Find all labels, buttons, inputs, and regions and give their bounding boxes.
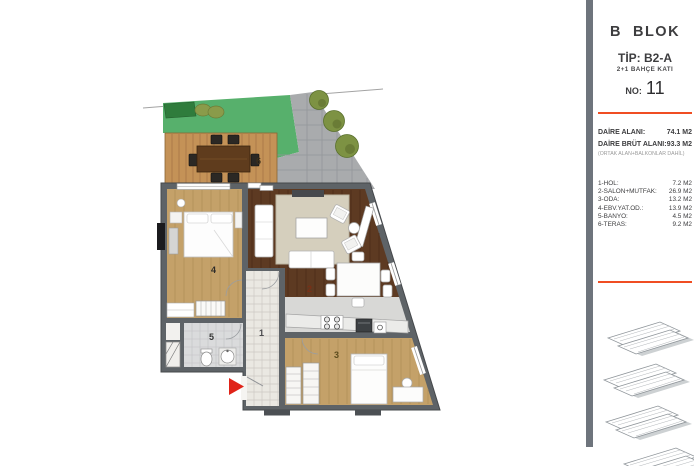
floor-type: 2+1 BAHÇE KATI (598, 66, 692, 73)
hall-closet (286, 367, 301, 404)
label-banyo: 5 (209, 332, 214, 342)
floor-plate-pair (604, 364, 690, 398)
desk-chair (402, 378, 412, 388)
room-label: 6-TERAS: (598, 221, 627, 229)
vestibule (166, 323, 180, 340)
room-value: 13.2 M2 (669, 196, 692, 204)
area-value: 93.3 M2 (667, 141, 692, 148)
room-row: 4-EBV.YAT.OD.: 13.9 M2 (598, 205, 692, 213)
label-hall: 1 (259, 328, 264, 338)
unit-number: NO: 11 (598, 78, 692, 99)
oda-wardrobe (303, 363, 319, 404)
room-list: 1-HOL: 7.2 M2 2-SALON+MUTFAK: 26.9 M2 3-… (598, 180, 692, 229)
dining-chair (352, 252, 364, 261)
toilet (201, 352, 212, 366)
unit-number-label: NO: (625, 86, 642, 96)
room-row: 5-BANYO: 4.5 M2 (598, 213, 692, 221)
dining-chair (381, 270, 390, 282)
dining-chair (326, 284, 335, 296)
area-row: DAİRE ALANI: 74.1 M2 (598, 129, 692, 136)
unit-type: TİP: B2-A (598, 51, 692, 65)
block-title: B BLOK (598, 24, 692, 40)
desk (393, 387, 423, 402)
nightstand (235, 212, 242, 228)
room-label: 5-BANYO: (598, 213, 628, 221)
info-panel: B BLOK TİP: B2-A 2+1 BAHÇE KATI NO: 11 D… (598, 0, 692, 466)
dining-table (337, 263, 380, 296)
sofa (255, 205, 273, 257)
hedge (164, 102, 196, 118)
area-note: (ORTAK ALAN+BALKONLAR DAHİL) (598, 151, 692, 157)
room-value: 26.9 M2 (669, 188, 692, 196)
area-label: DAİRE BRÜT ALANI: (598, 141, 667, 148)
room-row: 6-TERAS: 9.2 M2 (598, 221, 692, 229)
sill (355, 410, 381, 416)
floor-stack-icon (600, 318, 694, 466)
label-salon: 2 (307, 284, 312, 294)
sill (264, 410, 290, 416)
label-teras: 6 (256, 156, 261, 166)
lamp (177, 199, 185, 207)
room-value: 4.5 M2 (672, 213, 692, 221)
dresser (169, 228, 178, 254)
area-value: 74.1 M2 (667, 129, 692, 136)
panel-divider-bar (586, 0, 593, 447)
side-window (157, 223, 165, 250)
unit-number-value: 11 (646, 78, 665, 99)
floor-plate-pair (624, 448, 694, 466)
accent-rule-top (598, 112, 692, 114)
dining-chair (326, 268, 335, 280)
tv-unit (292, 190, 324, 197)
room-value: 9.2 M2 (672, 221, 692, 229)
loveseat (289, 251, 334, 268)
label-ebeveyn: 4 (211, 265, 216, 275)
oven (356, 319, 372, 332)
accent-rule-bottom (598, 281, 692, 283)
floor-plate-pair (606, 406, 692, 440)
area-row: DAİRE BRÜT ALANI: 93.3 M2 (598, 141, 692, 148)
coffee-table (296, 218, 327, 238)
wardrobe (196, 301, 225, 316)
entrance-door-opening (241, 376, 247, 400)
kitchen-sink (374, 322, 386, 333)
floor-plate-pair (608, 322, 694, 356)
room-row: 3-ODA: 13.2 M2 (598, 196, 692, 204)
terrace-door (248, 183, 261, 188)
room-label: 3-ODA: (598, 196, 619, 204)
area-summary: DAİRE ALANI: 74.1 M2 DAİRE BRÜT ALANI: 9… (598, 129, 692, 157)
room-value: 7.2 M2 (672, 180, 692, 188)
shaft-closet (166, 342, 180, 367)
side-table (349, 223, 360, 234)
area-label: DAİRE ALANI: (598, 129, 645, 136)
dining-chair (383, 285, 392, 297)
nightstand (170, 212, 182, 223)
room-label: 1-HOL: (598, 180, 619, 188)
label-oda: 3 (334, 350, 339, 360)
room-value: 13.9 M2 (669, 205, 692, 213)
room-row: 2-SALON+MUTFAK: 26.9 M2 (598, 188, 692, 196)
room-row: 1-HOL: 7.2 M2 (598, 180, 692, 188)
dining-chair (352, 298, 364, 307)
room-label: 4-EBV.YAT.OD.: (598, 205, 643, 213)
room-label: 2-SALON+MUTFAK: (598, 188, 657, 196)
floor-plan: 1 2 3 4 5 6 (0, 0, 700, 466)
